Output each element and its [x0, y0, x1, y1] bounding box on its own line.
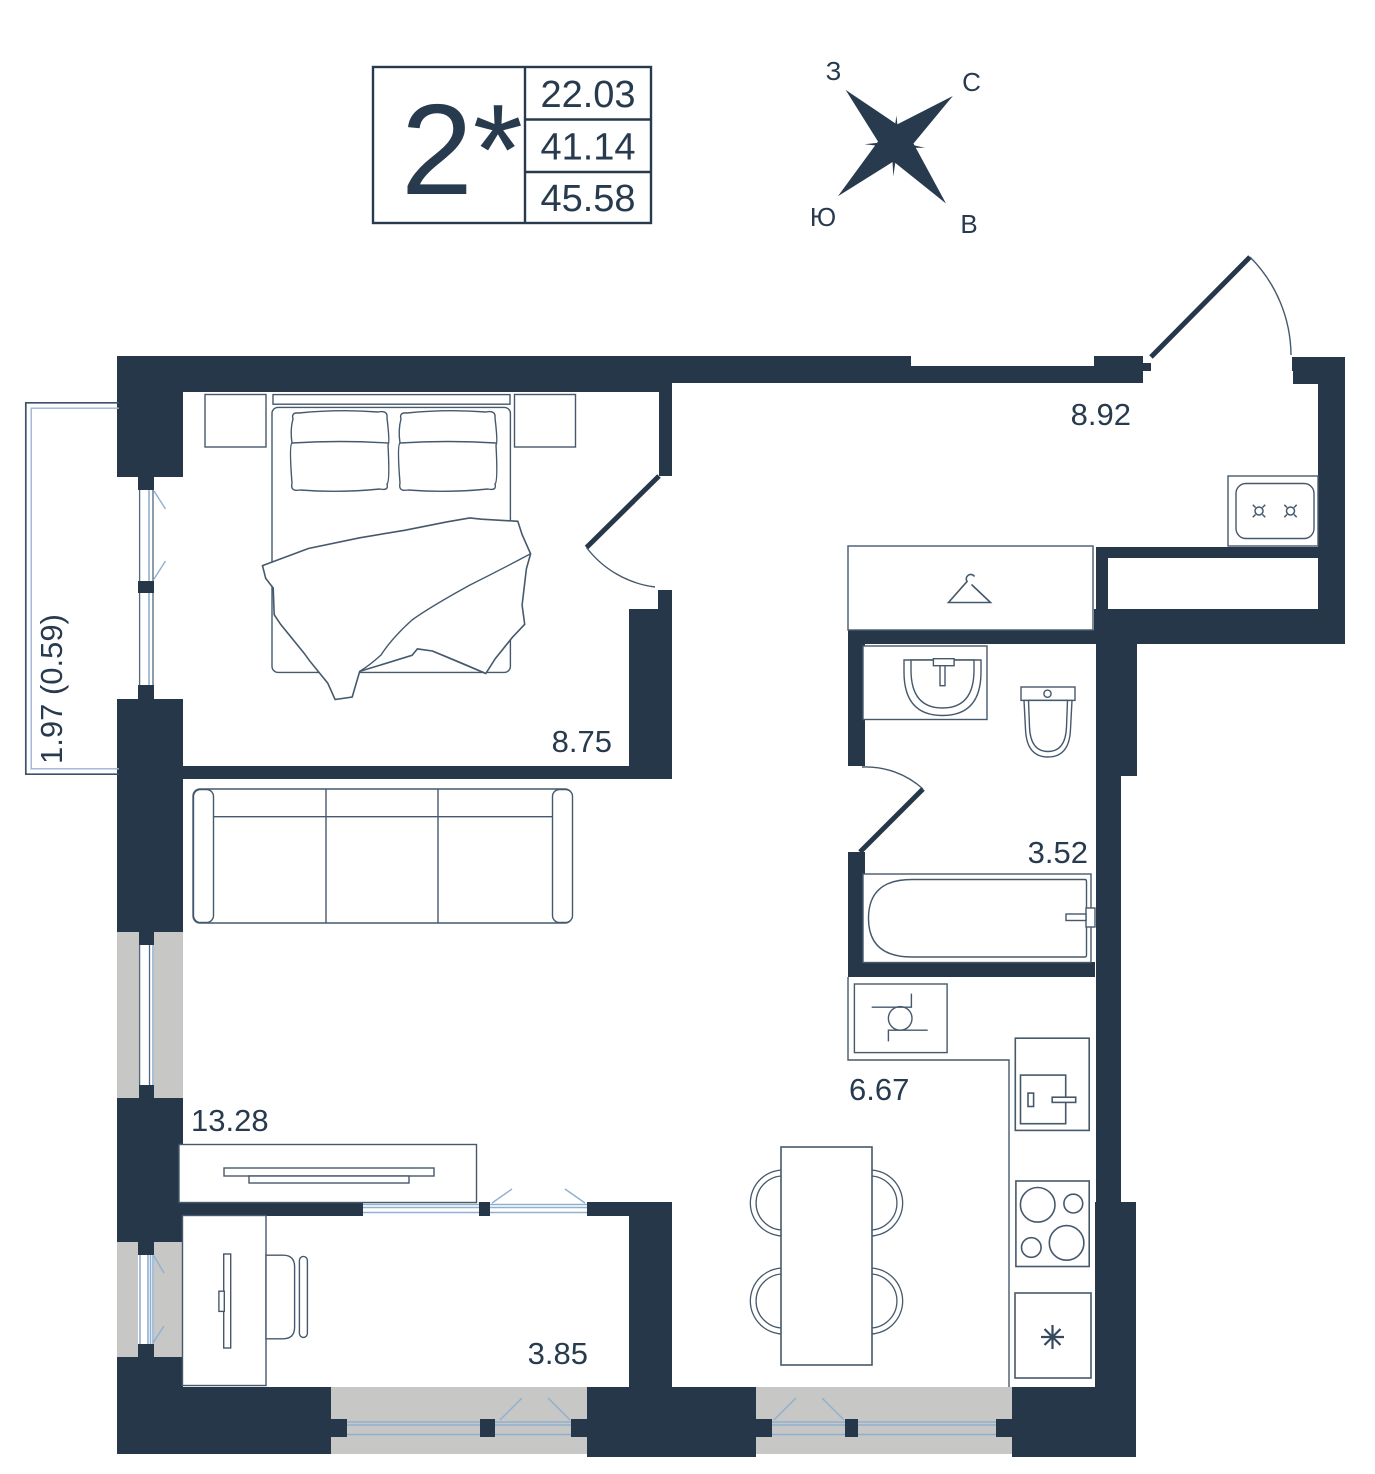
- svg-text:С: С: [962, 67, 981, 97]
- svg-text:8.92: 8.92: [1071, 397, 1131, 432]
- svg-text:8.75: 8.75: [552, 724, 612, 759]
- svg-text:З: З: [826, 56, 842, 86]
- svg-text:6.67: 6.67: [849, 1072, 909, 1107]
- svg-text:3.85: 3.85: [528, 1336, 588, 1371]
- svg-text:3.52: 3.52: [1028, 835, 1088, 870]
- svg-text:41.14: 41.14: [540, 127, 635, 169]
- svg-text:1.97 (0.59): 1.97 (0.59): [34, 614, 69, 764]
- svg-text:2*: 2*: [401, 78, 523, 222]
- svg-text:22.03: 22.03: [540, 74, 635, 116]
- svg-text:В: В: [960, 209, 977, 239]
- svg-text:13.28: 13.28: [191, 1103, 269, 1138]
- svg-text:Ю: Ю: [810, 202, 836, 232]
- svg-text:45.58: 45.58: [540, 178, 635, 220]
